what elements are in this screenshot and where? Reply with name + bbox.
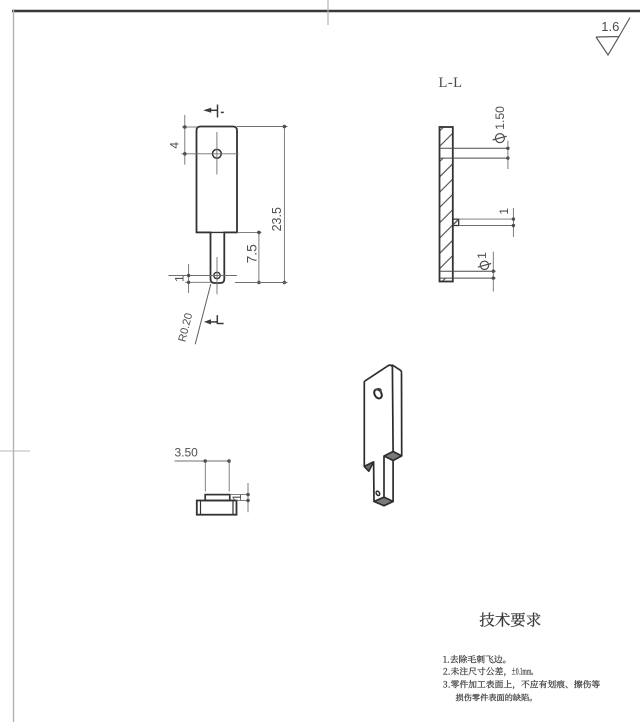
svg-text:1: 1 [230,494,244,501]
svg-text:3.50: 3.50 [175,446,199,460]
svg-text:23.5: 23.5 [270,207,284,231]
svg-text:4: 4 [167,142,181,149]
svg-text:1.6: 1.6 [601,19,619,34]
svg-text:1: 1 [497,208,511,215]
svg-text:1: 1 [173,275,187,282]
svg-text:L-L: L-L [439,75,463,91]
svg-text:1.50: 1.50 [493,106,507,130]
svg-text:7.5: 7.5 [244,244,259,264]
svg-text:1: 1 [475,252,489,259]
